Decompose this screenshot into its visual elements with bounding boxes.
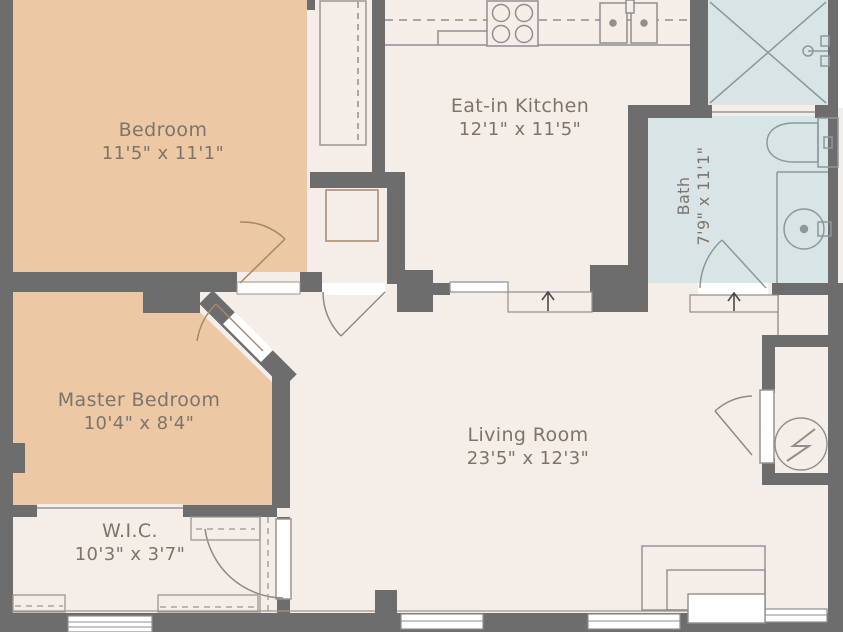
room-dimensions: 7'9" x 11'1" (694, 147, 714, 246)
room-dimensions: 10'4" x 8'4" (58, 412, 220, 435)
cased-opening (450, 282, 508, 292)
wall-seg (433, 283, 450, 295)
wall-shower-pier (815, 105, 838, 118)
wall-bottom-pier (375, 590, 397, 613)
wall-door-pier (300, 272, 322, 292)
room-name: W.I.C. (75, 520, 186, 543)
room-label-bedroom: Bedroom 11'5" x 11'1" (102, 119, 224, 165)
room-label-bath: Bath 7'9" x 11'1" (674, 147, 714, 246)
wall-wic-stub (13, 505, 37, 517)
wall-wic-top (183, 505, 277, 517)
exterior-gap (838, 0, 843, 108)
room-label-living-room: Living Room 23'5" x 12'3" (467, 424, 589, 470)
wall-utility-bottom (762, 473, 843, 485)
wall-shower-left (690, 0, 708, 105)
wall-bedroom-kitchen (372, 0, 385, 177)
room-name: Bedroom (102, 119, 224, 142)
wall-bath-bottom (772, 283, 843, 295)
wall-master-right (272, 374, 290, 508)
kitchen-living-door-gap (322, 283, 385, 295)
room-name: Master Bedroom (58, 389, 220, 412)
bedroom-door-threshold (237, 282, 300, 294)
wall-utility-top (762, 335, 843, 347)
window (68, 616, 152, 632)
room-name: Eat-in Kitchen (451, 95, 589, 118)
floor-plan: Bedroom 11'5" x 11'1" Eat-in Kitchen 12'… (0, 0, 843, 632)
room-name: Living Room (467, 424, 589, 447)
wall-master-step (143, 292, 200, 313)
room-label-wic: W.I.C. 10'3" x 3'7" (75, 520, 186, 566)
wall-kitchen-bath-block (590, 283, 648, 312)
room-name: Bath (674, 147, 694, 246)
wall-kitchen-bath (628, 108, 648, 268)
room-label-master-bedroom: Master Bedroom 10'4" x 8'4" (58, 389, 220, 435)
room-label-kitchen: Eat-in Kitchen 12'1" x 11'5" (451, 95, 589, 141)
stove (487, 1, 538, 46)
wall-bedroom-bottom (0, 272, 237, 292)
wall-left (0, 0, 13, 632)
wall-kitchen-bath-foot (590, 265, 648, 283)
room-dimensions: 11'5" x 11'1" (102, 142, 224, 165)
room-dimensions: 23'5" x 12'3" (467, 447, 589, 470)
wall-alcove-right (387, 172, 405, 284)
wall-closet-stub (307, 0, 315, 10)
wall-entry-pillar (397, 270, 433, 312)
room-dimensions: 12'1" x 11'5" (451, 118, 589, 141)
wall-utility-left-upper (762, 347, 775, 393)
wall-left-pier (13, 443, 25, 473)
room-dimensions: 10'3" x 3'7" (75, 543, 186, 566)
